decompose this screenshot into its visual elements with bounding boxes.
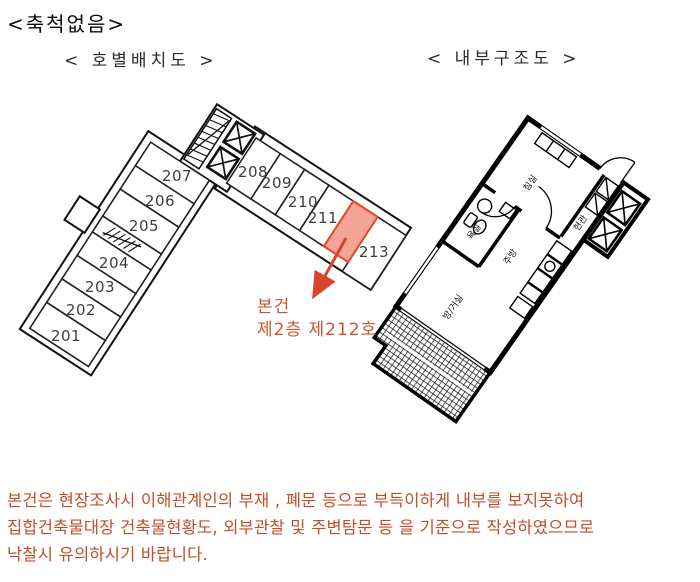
- unit-number-204: 204: [99, 254, 129, 272]
- unit-number-207: 207: [162, 167, 192, 185]
- unit-number-205: 205: [129, 217, 159, 235]
- unit-number-211: 211: [308, 209, 338, 227]
- unit-number-209: 209: [262, 174, 292, 192]
- notice-line: 집합건축물대장 건축물현황도, 외부관찰 및 주변탐문 등 을 기준으로 작성하…: [7, 514, 699, 541]
- notice-paragraph: 본건은 현장조사시 이해관계인의 부재 , 폐문 등으로 부득이하게 내부를 보…: [7, 487, 699, 568]
- unit-layout-diagram: [1, 67, 411, 478]
- notice-line: 낙찰시 유의하시기 바랍니다.: [7, 541, 699, 568]
- unit-number-203: 203: [85, 278, 115, 296]
- unit-number-206: 206: [145, 192, 175, 210]
- subject-annotation-line1: 본건: [257, 296, 377, 319]
- notice-line: 본건은 현장조사시 이해관계인의 부재 , 폐문 등으로 부득이하게 내부를 보…: [7, 487, 699, 514]
- unit-number-213: 213: [359, 243, 389, 261]
- diagrams-canvas: 201 202 203 204 205 206 207 208 209 210 …: [0, 0, 700, 480]
- floorplan: 침실 욕실 주방 방/거실 현관: [360, 96, 661, 438]
- subject-annotation-line2: 제2층 제212호: [257, 319, 377, 342]
- unit-number-201: 201: [51, 327, 81, 345]
- subject-annotation: 본건 제2층 제212호: [257, 296, 377, 342]
- unit-number-202: 202: [66, 301, 96, 319]
